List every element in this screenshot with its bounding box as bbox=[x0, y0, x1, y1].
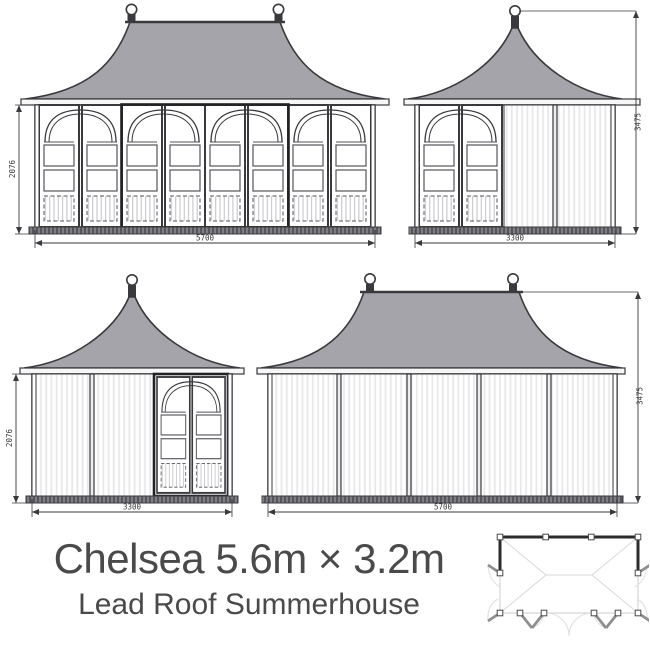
corner-board bbox=[371, 105, 375, 227]
roof bbox=[24, 297, 240, 368]
finial bbox=[510, 6, 520, 28]
left-side-elevation-view: 2076 3300 bbox=[2, 268, 252, 523]
rear-elevation-view: 3475 5700 bbox=[253, 268, 648, 523]
dimension-label: 2076 bbox=[8, 159, 17, 178]
dimension-label: 5700 bbox=[196, 234, 215, 243]
roof bbox=[25, 22, 385, 99]
title-block: Chelsea 5.6m × 3.2m Lead Roof Summerhous… bbox=[0, 536, 498, 622]
finial bbox=[365, 274, 518, 292]
drawing-canvas: 2076 5700 bbox=[0, 0, 650, 650]
product-title: Chelsea 5.6m × 3.2m bbox=[0, 536, 498, 582]
dimension-label: 2076 bbox=[5, 428, 14, 447]
eaves-fascia bbox=[257, 368, 625, 374]
wall-post bbox=[407, 374, 411, 496]
plan-walls bbox=[500, 537, 638, 573]
roof bbox=[408, 28, 622, 99]
wall-post bbox=[547, 374, 551, 496]
height-dimension: 2076 bbox=[5, 374, 30, 503]
dimension-label: 3475 bbox=[634, 113, 643, 131]
plan-open-doors bbox=[488, 565, 649, 628]
corner-board bbox=[611, 105, 615, 227]
wall-post bbox=[553, 105, 557, 227]
cladding bbox=[272, 374, 613, 496]
corner-board bbox=[32, 374, 36, 496]
front-elevation-view: 2076 5700 bbox=[5, 2, 400, 252]
corner-board bbox=[268, 374, 272, 496]
dimension-label: 3475 bbox=[636, 387, 645, 405]
finial bbox=[127, 275, 137, 297]
product-subtitle: Lead Roof Summerhouse bbox=[0, 588, 498, 622]
floor-plan-view bbox=[486, 527, 649, 649]
dimension-label: 5700 bbox=[434, 503, 453, 512]
corner-board bbox=[415, 105, 419, 227]
dimension-label: 3300 bbox=[123, 503, 142, 512]
cladding bbox=[36, 374, 154, 496]
right-side-elevation-view: 3475 3300 bbox=[400, 2, 645, 252]
dimension-label: 3300 bbox=[506, 234, 525, 243]
roof bbox=[261, 292, 622, 368]
wall-post bbox=[337, 374, 341, 496]
height-dimension: 2076 bbox=[8, 105, 33, 234]
corner-board bbox=[35, 105, 39, 227]
corner-board bbox=[613, 374, 617, 496]
wall-post bbox=[90, 374, 94, 496]
wall-post bbox=[477, 374, 481, 496]
plan-roof-hips bbox=[500, 537, 638, 613]
corner-board bbox=[228, 374, 232, 496]
finial bbox=[126, 4, 283, 22]
